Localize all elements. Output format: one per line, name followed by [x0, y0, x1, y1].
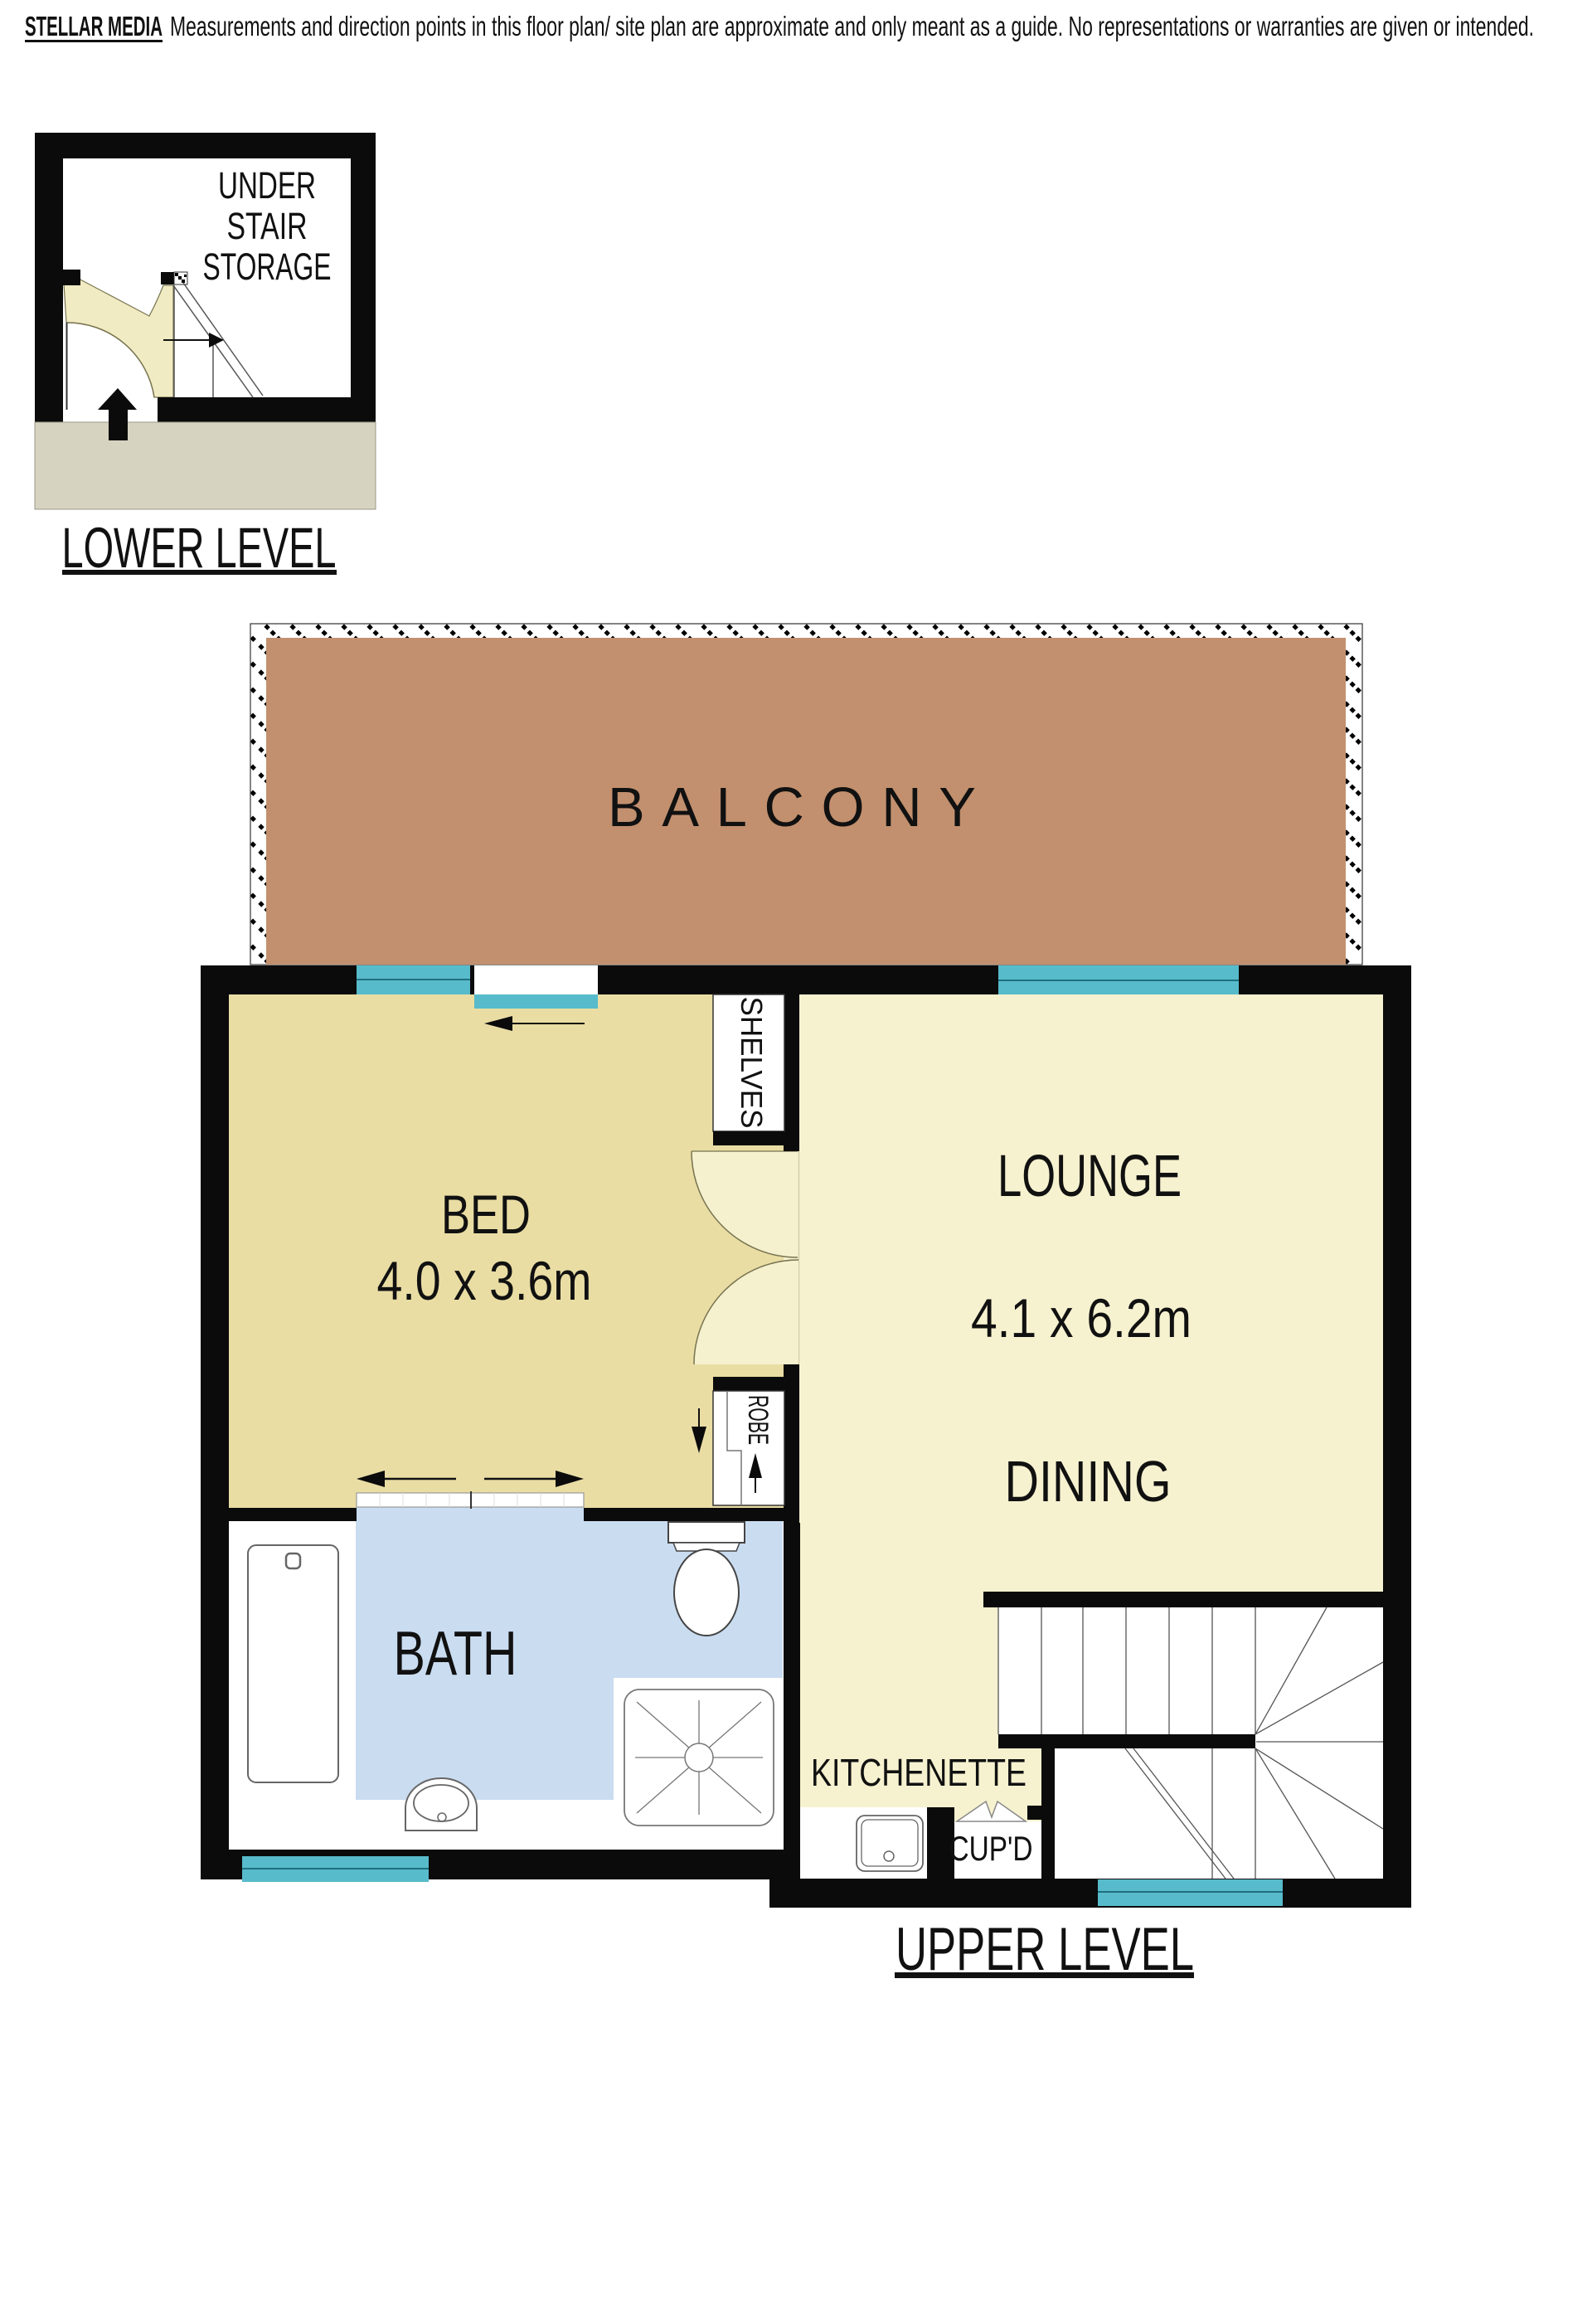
svg-text:LOUNGE: LOUNGE — [997, 1144, 1182, 1209]
svg-text:ROBE: ROBE — [742, 1395, 774, 1445]
svg-text:BALCONY: BALCONY — [608, 776, 976, 839]
svg-text:UNDER: UNDER — [218, 164, 316, 207]
svg-text:STAIR: STAIR — [227, 205, 308, 247]
svg-text:BED: BED — [441, 1184, 531, 1245]
svg-text:KITCHENETTE: KITCHENETTE — [811, 1751, 1027, 1794]
svg-text:CUP'D: CUP'D — [949, 1829, 1033, 1868]
svg-text:STORAGE: STORAGE — [203, 246, 332, 288]
svg-text:4.0 x 3.6m: 4.0 x 3.6m — [377, 1250, 592, 1311]
svg-text:DINING: DINING — [1005, 1449, 1172, 1514]
svg-text:BATH: BATH — [394, 1618, 517, 1688]
svg-text:SHELVES: SHELVES — [735, 997, 769, 1129]
svg-text:Measurements and direction poi: Measurements and direction points in thi… — [170, 11, 1534, 41]
svg-text:STELLAR MEDIA: STELLAR MEDIA — [25, 11, 163, 41]
svg-text:4.1 x 6.2m: 4.1 x 6.2m — [971, 1287, 1192, 1349]
